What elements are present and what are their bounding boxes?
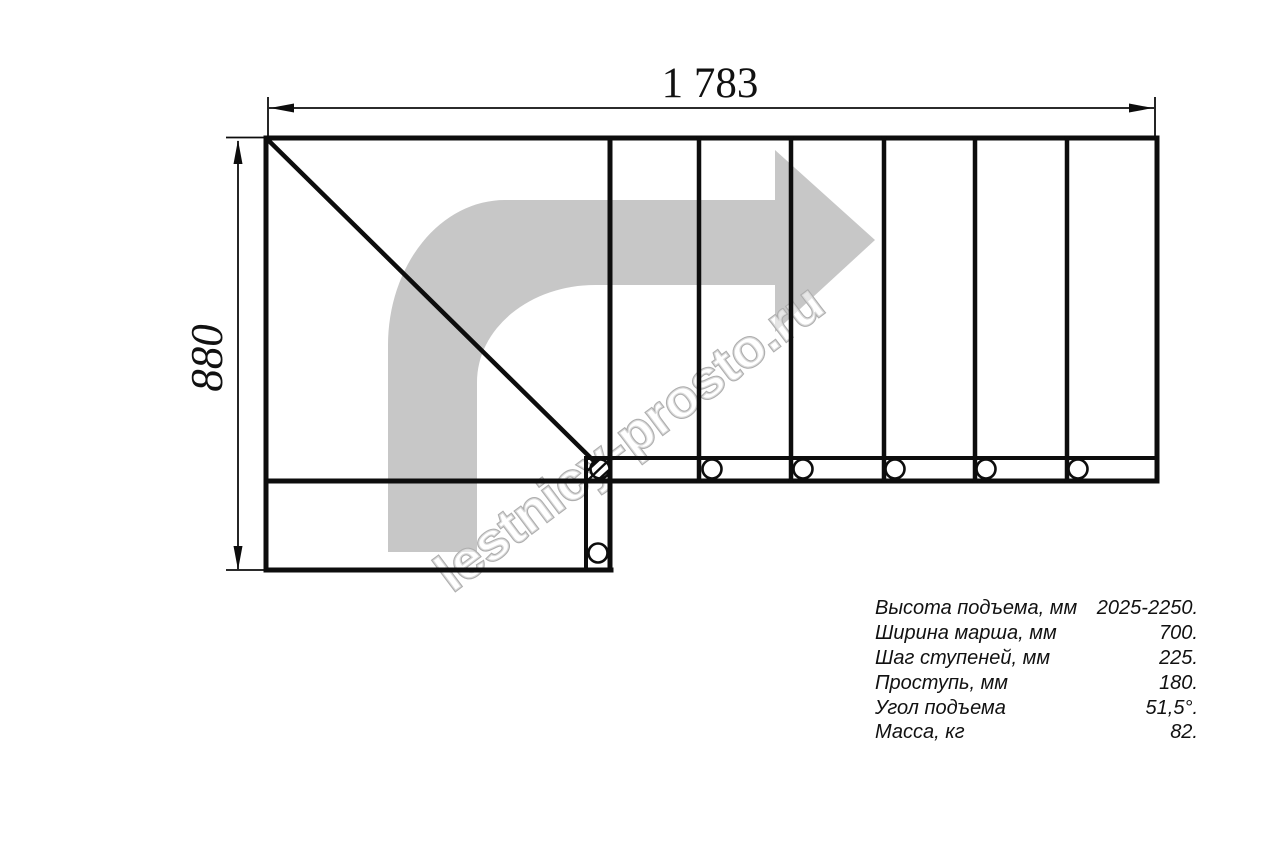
staircase-drawing-page: lestnicy-prosto.ru 1 783 880 [0,0,1280,853]
spec-value: 51,5°. [1146,696,1198,721]
spec-value: 225. [1159,646,1198,671]
tread-circle [1069,460,1088,479]
spec-value: 2025-2250. [1097,596,1198,621]
tread-circle [794,460,813,479]
spec-label: Высота подъема, мм [875,596,1077,621]
spec-label: Масса, кг [875,720,965,745]
dimension-height-text: 880 [182,324,232,392]
dimension-arrow-up [234,140,243,164]
spec-value: 700. [1159,621,1198,646]
tread-circle [703,460,722,479]
dimension-arrow-right [1129,104,1153,113]
spec-label: Угол подъема [875,696,1006,721]
spec-label: Проступь, мм [875,671,1008,696]
dimension-arrow-down [234,546,243,570]
spec-value: 82. [1170,720,1198,745]
dimension-width-text: 1 783 [662,60,759,107]
direction-arrow-shape [388,150,875,552]
dimension-left [226,138,268,571]
spec-row: Ширина марша, мм 700. [875,621,1198,646]
tread-circle [977,460,996,479]
dimension-arrow-left [270,104,294,113]
spec-row: Шаг ступеней, мм 225. [875,646,1198,671]
spec-row: Проступь, мм 180. [875,671,1198,696]
spec-row: Высота подъема, мм 2025-2250. [875,596,1198,621]
stringer-circles [589,460,1088,563]
tread-circle [886,460,905,479]
spec-label: Ширина марша, мм [875,621,1057,646]
spec-label: Шаг ступеней, мм [875,646,1050,671]
spec-value: 180. [1159,671,1198,696]
specs-table: Высота подъема, мм 2025-2250. Ширина мар… [875,596,1198,745]
direction-arrow-watermark [388,150,875,552]
tread-circle [589,544,608,563]
spec-row: Угол подъема 51,5°. [875,696,1198,721]
spec-row: Масса, кг 82. [875,720,1198,745]
